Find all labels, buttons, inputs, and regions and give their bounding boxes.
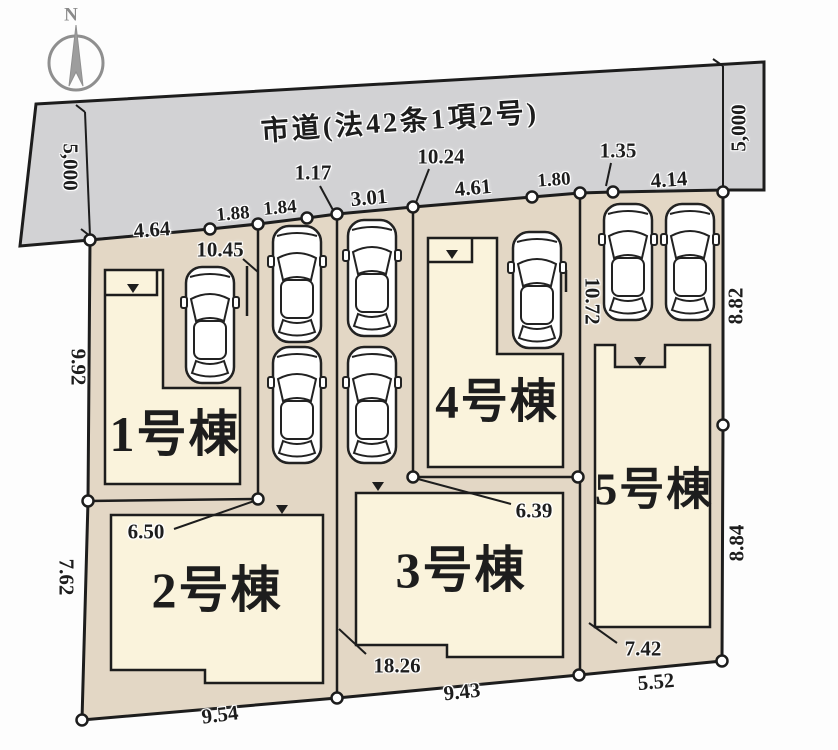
dim-10-72: 10.72 [582,277,603,324]
dim-1-17: 1.17 [295,163,332,184]
dim-10-24: 10.24 [417,147,464,168]
car-icon [661,204,719,320]
car-icon [268,347,326,463]
dim-1-35: 1.35 [600,141,637,162]
car-icon [181,267,239,383]
dim-8-82: 8.82 [726,288,747,325]
dim-18-26: 18.26 [373,656,420,677]
dim-road-width-left: 5,000 [60,143,81,190]
dim-1-84: 1.84 [263,197,298,219]
car-icon [508,232,566,348]
dim-10-45: 10.45 [196,240,243,261]
car-icon [268,226,326,342]
dim-5-52: 5.52 [637,670,675,694]
car-icon [343,347,401,463]
lot-label-5: 5号棟 [595,468,714,513]
car-icon [599,204,657,320]
compass-north-label: N [64,6,78,25]
dim-7-62: 7.62 [56,559,77,596]
dim-3-01: 3.01 [350,186,388,210]
dim-1-80: 1.80 [537,169,571,190]
dim-9-54: 9.54 [200,702,239,727]
dim-9-43: 9.43 [443,680,482,705]
compass-icon [49,25,103,90]
dim-6-50: 6.50 [128,522,165,543]
dim-4-61: 4.61 [454,176,492,200]
dim-6-39: 6.39 [516,501,553,522]
lot-label-1: 1号棟 [110,409,241,459]
dim-4-64: 4.64 [133,218,171,242]
site-plan: N 市道(法42条1項2号) 4.64 1.88 1.84 1.17 3.01 … [0,0,838,750]
dim-1-88: 1.88 [216,203,251,225]
lot-label-2: 2号棟 [152,565,283,615]
dim-8-84: 8.84 [727,525,748,562]
dim-4-14: 4.14 [650,168,688,192]
dim-road-width-right: 5,000 [729,104,750,151]
dim-7-42: 7.42 [625,639,662,660]
lot-label-3: 3号棟 [396,545,527,595]
lot-label-4: 4号棟 [435,380,559,427]
car-icon [343,220,401,336]
dim-9-92: 9.92 [68,349,89,386]
